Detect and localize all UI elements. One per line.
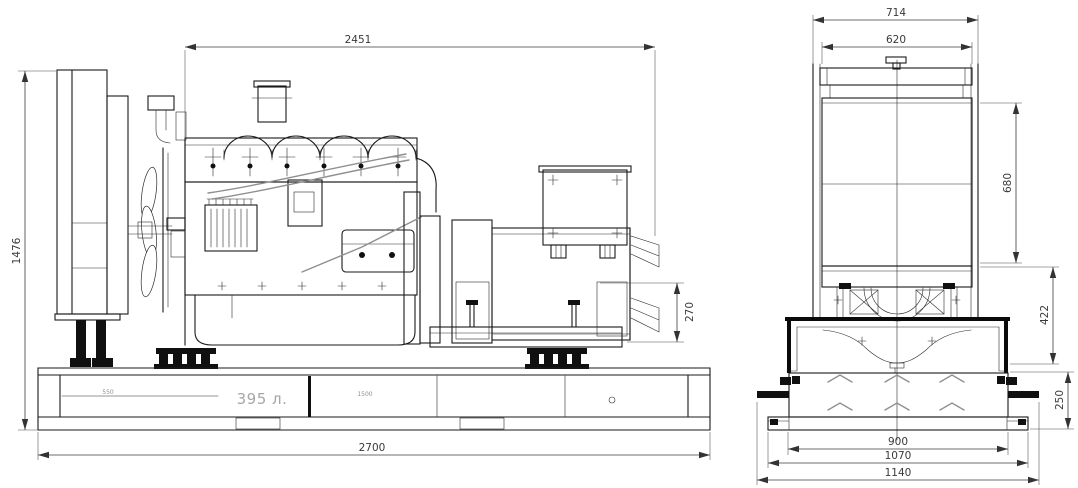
base-frame-front	[787, 319, 1008, 373]
dim-frame-to-base-label: 422	[1039, 305, 1051, 325]
dim-overall-width-label: 1140	[885, 467, 912, 479]
end-view: 714 620 680 422 250 900	[757, 7, 1074, 485]
engine-mounting-feet	[154, 348, 589, 369]
fuel-tank-front	[757, 373, 1039, 430]
engine-side	[148, 81, 436, 345]
dim-overall-height: 1476	[11, 71, 56, 430]
terminal-box	[539, 166, 631, 258]
radiator-side	[55, 70, 128, 367]
injectors	[205, 148, 406, 176]
dim-core-width: 620	[822, 34, 972, 64]
dim-foot-span-label: 900	[888, 436, 908, 448]
technical-drawing-sheet: 550 1500 395 л. 2451 1476 2700 270	[0, 0, 1078, 488]
cooling-fan	[128, 148, 172, 312]
dim-base-height-label: 250	[1054, 390, 1066, 410]
front-vent-grille	[456, 282, 489, 339]
base-plate	[768, 417, 1028, 430]
right-mounting-bolt	[1008, 391, 1039, 398]
flywheel-housing	[404, 192, 440, 344]
dim-overall-height-label: 1476	[11, 237, 23, 264]
base-frame-fuel-tank-side: 550 1500 395 л.	[38, 368, 710, 430]
dim-core-width-label: 620	[886, 34, 906, 46]
dim-frame-width-label: 714	[886, 7, 906, 19]
dim-base-length: 2700	[38, 432, 710, 460]
alternator-side	[430, 166, 659, 347]
tank-capacity-label: 395 л.	[237, 390, 288, 408]
tank-compartment-mid-label: 1500	[357, 391, 372, 398]
side-view: 550 1500 395 л. 2451 1476 2700 270	[11, 34, 710, 460]
dim-alternator-rear-height-label: 270	[684, 302, 696, 322]
tank-compartment-left-label: 550	[102, 389, 114, 396]
radiator-front	[813, 57, 978, 318]
rear-bracket-lower	[631, 298, 659, 332]
radiator-cap	[886, 57, 906, 63]
dim-frame-to-base: 422	[980, 267, 1059, 364]
left-mounting-bolt	[757, 391, 789, 398]
injection-pump	[205, 199, 257, 251]
dim-base-length-label: 2700	[359, 442, 386, 454]
dim-plate-width-label: 1070	[885, 450, 912, 462]
rear-bracket-upper	[631, 236, 659, 267]
dim-core-height-label: 680	[1002, 173, 1014, 193]
dim-overall-length-label: 2451	[345, 34, 372, 46]
genset-drawing: 550 1500 395 л. 2451 1476 2700 270	[0, 0, 1078, 488]
dim-core-height: 680	[980, 103, 1022, 263]
